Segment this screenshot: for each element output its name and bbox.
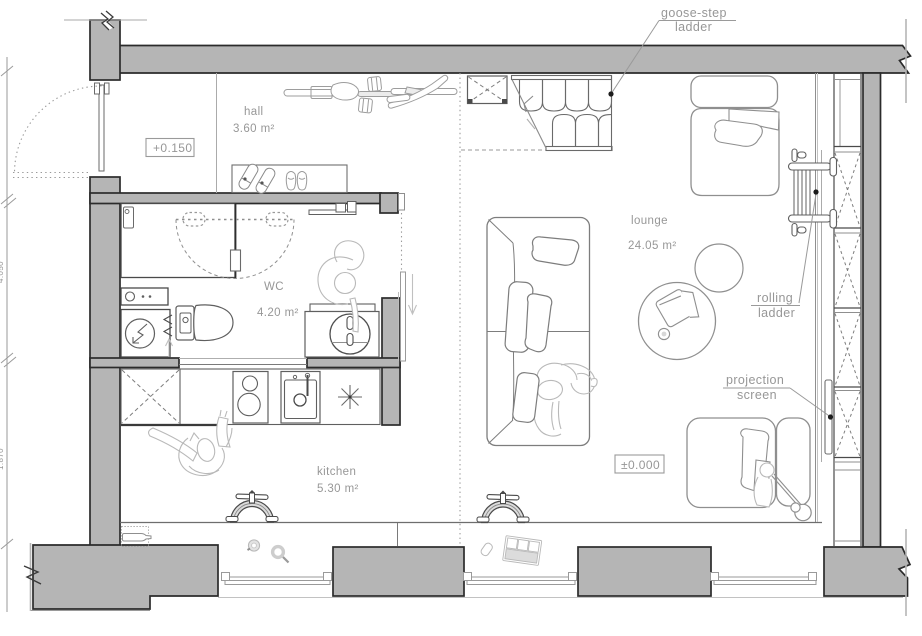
svg-text:hall: hall xyxy=(244,106,264,118)
svg-text:ladder: ladder xyxy=(675,20,712,34)
svg-text:±0.000: ±0.000 xyxy=(621,458,660,472)
svg-text:4.20 m²: 4.20 m² xyxy=(257,307,299,319)
svg-text:kitchen: kitchen xyxy=(317,466,356,478)
svg-text:3.60 m²: 3.60 m² xyxy=(233,123,275,135)
svg-text:ladder: ladder xyxy=(758,306,795,320)
svg-text:WC: WC xyxy=(264,281,284,293)
svg-text:1.870: 1.870 xyxy=(0,448,5,470)
svg-text:5.30 m²: 5.30 m² xyxy=(317,483,359,495)
svg-text:rolling: rolling xyxy=(757,291,793,305)
svg-text:screen: screen xyxy=(737,388,777,402)
svg-text:4.050: 4.050 xyxy=(0,261,5,283)
svg-text:projection: projection xyxy=(726,373,784,387)
svg-text:goose-step: goose-step xyxy=(661,6,727,20)
svg-text:24.05 m²: 24.05 m² xyxy=(628,240,677,252)
svg-text:lounge: lounge xyxy=(631,215,668,227)
svg-text:+0.150: +0.150 xyxy=(153,141,192,155)
